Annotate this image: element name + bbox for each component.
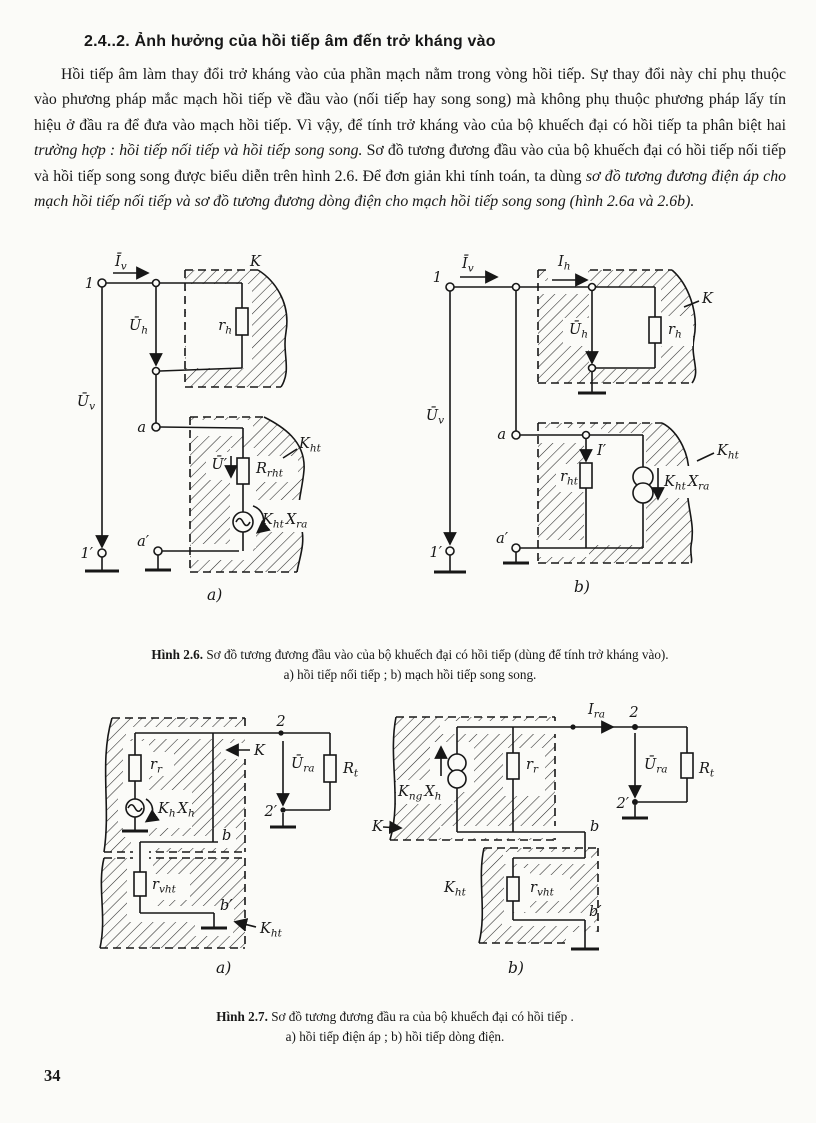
label-node-1p: 1′ [429,545,442,561]
label-node-ap: a′ [496,531,509,547]
caption-number: Hình 2.6. [151,647,203,662]
label-uv: Ūv [426,406,444,427]
paragraph-run-italic: trường hợp : hồi tiếp nối tiếp và hồi ti… [34,142,362,159]
section-heading: 2.4..2. Ảnh hưởng của hồi tiếp âm đến tr… [84,33,496,51]
junction [583,432,590,439]
node-1 [98,279,106,287]
junction [513,284,520,291]
resistor-rh [649,317,661,343]
label-rt: Rt [698,761,715,780]
figure-2-6b-diagram: 1 Īv Ih Ūh rh K Ūv a I′ rht KhtXra Kht a… [420,248,790,603]
resistor-rht [580,463,592,488]
node-2 [632,724,638,730]
label-node-2p: 2′ [615,796,629,812]
label-node-b: b [222,828,231,844]
label-node-2: 2 [275,714,285,730]
voltage-source-khtxra [233,512,253,532]
figure-2-7-caption: Hình 2.7. Sơ đồ tương đương đầu ra của b… [0,1007,790,1047]
label-ura: Ūra [291,754,315,775]
figure-2-7a-diagram: rr KhXh K 2 Ūra Rt 2′ b rvht b′ Kht a) [75,698,375,990]
subfigure-label-a: a) [207,586,222,604]
caption-line2: a) hồi tiếp điện áp ; b) hồi tiếp dòng đ… [0,1027,790,1047]
node-1p [446,547,454,555]
label-k: K [371,819,384,835]
label-kht: Kht [298,436,322,455]
node-a [152,423,160,431]
figure-2-6a-diagram: 1 Īv Ūh Ūv K rh a Ū′ Rrht KhtXra Kht a′ … [60,250,405,615]
caption-line2: a) hồi tiếp nối tiếp ; b) mạch hồi tiếp … [38,665,782,685]
figure-2-7b-diagram: KngXh rr Ira 2 Ūra Rt 2′ K b Kht rvht b′… [368,695,753,1000]
feedback-block-kht [100,846,245,948]
junction [589,365,596,372]
voltage-source-khxh [126,799,144,817]
subfigure-label-b: b) [574,578,590,596]
label-k: K [253,743,266,759]
resistor-rt [324,755,336,782]
label-uh: Ūh [129,316,148,337]
resistor-rrht [237,458,249,484]
label-iprime: I′ [596,443,607,459]
subfigure-label-b: b) [508,959,524,977]
label-iv: Īv [114,252,127,273]
resistor-rvht [507,877,519,901]
current-source-khtxra [633,467,653,503]
label-node-a: a [497,427,506,443]
feedback-block-kht [190,417,312,572]
subfigure-label-a: a) [216,959,231,977]
label-uv: Ūv [77,392,95,413]
junction-dot [570,724,575,729]
label-node-ap: a′ [137,534,150,550]
node-a [512,431,520,439]
label-k: K [701,291,714,307]
feedback-block-kht [538,423,722,563]
label-k: K [249,254,262,270]
label-ura: Ūra [644,755,668,776]
caption-number: Hình 2.7. [216,1009,268,1024]
resistor-rr [507,753,519,779]
label-kht: Kht [259,921,283,940]
node-ap [154,547,162,555]
label-node-2: 2 [628,705,638,721]
junction [589,284,596,291]
paragraph-run: Hồi tiếp âm làm thay đổi trở kháng vào c… [34,66,786,134]
label-node-1: 1 [433,270,442,286]
label-kht: Kht [443,880,467,899]
node-2p [632,799,638,805]
label-node-a: a [137,420,146,436]
label-ih: Ih [557,254,571,273]
label-node-2p: 2′ [263,804,277,820]
node-2 [278,730,283,735]
label-kht: Kht [716,443,740,462]
node-1 [446,283,454,291]
label-node-bp: b′ [589,904,602,920]
label-node-b: b [590,819,599,835]
junction [153,368,160,375]
node-1p [98,549,106,557]
caption-text: Sơ đồ tương đương đầu vào của bộ khuếch … [203,647,669,662]
ground-ap [503,552,529,563]
body-paragraph: Hồi tiếp âm làm thay đổi trở kháng vào c… [34,62,786,214]
label-uprime: Ū′ [211,455,227,473]
label-iv: Īv [461,254,474,275]
amplifier-block-k [390,717,560,840]
page-number: 34 [44,1066,61,1086]
ground-ap [145,555,171,570]
resistor-rt [681,753,693,778]
figure-2-6-caption: Hình 2.6. Sơ đồ tương đương đầu vào của … [38,645,782,685]
label-ira: Ira [587,702,605,721]
label-node-1p: 1′ [80,546,93,562]
resistor-rr [129,755,141,781]
junction [153,280,160,287]
resistor-rh [236,308,248,335]
label-rt: Rt [342,761,359,780]
node-2p [280,807,285,812]
label-node-1: 1 [85,276,94,292]
caption-text: Sơ đồ tương đương đầu ra của bộ khuếch đ… [268,1009,574,1024]
node-ap [512,544,520,552]
label-node-bp: b′ [220,898,233,914]
resistor-rvht [134,872,146,896]
